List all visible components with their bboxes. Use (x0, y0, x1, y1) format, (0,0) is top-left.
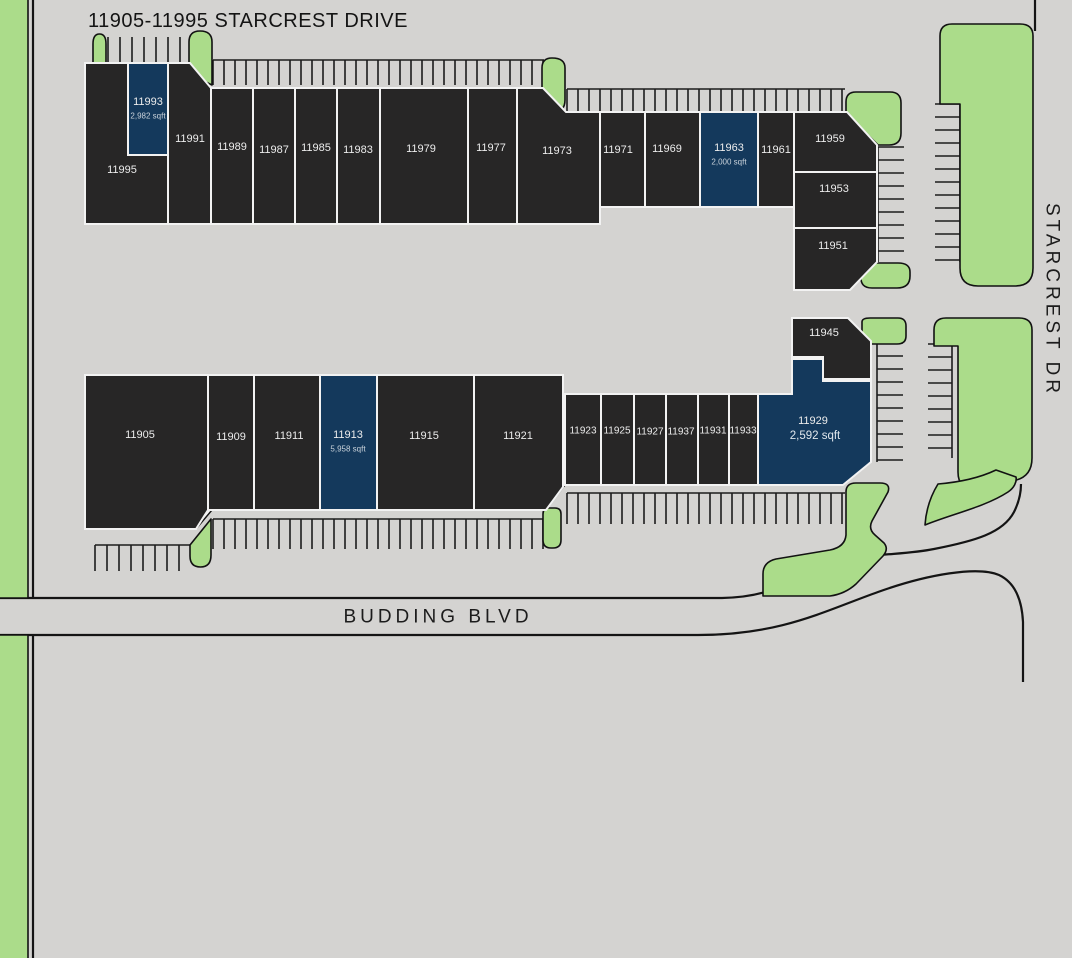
unit-11905[interactable]: 11905 (85, 375, 208, 529)
svg-text:11961: 11961 (761, 144, 791, 156)
landscape-island (543, 508, 561, 548)
unit-11913[interactable]: 11913 5,958 sqft (320, 375, 377, 510)
unit-11987[interactable]: 11987 (253, 88, 295, 224)
unit-11933[interactable]: 11933 (729, 394, 758, 485)
unit-11961[interactable]: 11961 (758, 112, 794, 207)
unit-11923[interactable]: 11923 (565, 394, 601, 485)
svg-text:11991: 11991 (175, 133, 205, 145)
svg-text:11977: 11977 (476, 142, 506, 154)
svg-text:11937: 11937 (667, 427, 695, 438)
unit-11971[interactable]: 11971 (600, 112, 645, 207)
unit-11979[interactable]: 11979 (380, 88, 468, 224)
svg-text:11953: 11953 (819, 183, 849, 195)
svg-text:11931: 11931 (699, 426, 727, 437)
unit-11985[interactable]: 11985 (295, 88, 337, 224)
svg-text:11945: 11945 (809, 327, 839, 339)
unit-11921[interactable]: 11921 (474, 375, 563, 510)
page-title: 11905-11995 STARCREST DRIVE (88, 10, 408, 32)
svg-text:2,982 sqft: 2,982 sqft (130, 112, 166, 121)
unit-11993[interactable]: 11993 2,982 sqft (128, 63, 168, 155)
unit-11937[interactable]: 11937 (666, 394, 698, 485)
landscape-west-strip-south (0, 635, 28, 958)
svg-text:2,000 sqft: 2,000 sqft (711, 158, 747, 167)
unit-11963[interactable]: 11963 2,000 sqft (700, 112, 758, 207)
svg-text:11985: 11985 (301, 142, 331, 154)
svg-text:11987: 11987 (259, 144, 289, 156)
svg-text:11915: 11915 (409, 430, 439, 442)
svg-text:11925: 11925 (603, 426, 631, 437)
svg-text:11971: 11971 (603, 144, 633, 156)
svg-text:11963: 11963 (714, 142, 744, 154)
unit-11991[interactable]: 11991 (168, 63, 211, 224)
svg-text:5,958 sqft: 5,958 sqft (330, 445, 366, 454)
unit-11989[interactable]: 11989 (211, 88, 253, 224)
svg-text:11959: 11959 (815, 133, 845, 145)
unit-11969[interactable]: 11969 (645, 112, 700, 207)
unit-11983[interactable]: 11983 (337, 88, 380, 224)
unit-11953[interactable]: 11953 (794, 172, 877, 228)
svg-text:11909: 11909 (216, 431, 246, 443)
svg-text:11973: 11973 (542, 145, 572, 157)
unit-11931[interactable]: 11931 (698, 394, 729, 485)
svg-text:11983: 11983 (343, 144, 373, 156)
unit-11927[interactable]: 11927 (634, 394, 666, 485)
unit-11977[interactable]: 11977 (468, 88, 517, 224)
starcrest-dr-label: STARCREST DR (1042, 203, 1063, 397)
svg-text:11995: 11995 (107, 164, 137, 176)
svg-text:11927: 11927 (636, 427, 664, 438)
site-plan: 11995 11993 2,982 sqft 11991 11989 11987… (0, 0, 1072, 958)
svg-text:11993: 11993 (133, 96, 163, 108)
unit-11915[interactable]: 11915 (377, 375, 474, 510)
svg-text:11905: 11905 (125, 429, 155, 441)
svg-text:11923: 11923 (569, 426, 597, 437)
svg-text:11933: 11933 (729, 426, 757, 437)
unit-11911[interactable]: 11911 (254, 375, 320, 510)
svg-text:11911: 11911 (275, 430, 304, 442)
unit-11909[interactable]: 11909 (208, 375, 254, 510)
svg-text:11913: 11913 (333, 429, 363, 441)
landscape-island (93, 34, 106, 65)
landscape-west-strip-north (0, 0, 28, 598)
svg-text:11921: 11921 (503, 430, 533, 442)
unit-11925[interactable]: 11925 (601, 394, 634, 485)
svg-text:11979: 11979 (406, 143, 436, 155)
svg-text:11969: 11969 (652, 143, 682, 155)
svg-text:11951: 11951 (818, 240, 848, 252)
svg-text:11989: 11989 (217, 141, 247, 153)
svg-text:11929: 11929 (798, 415, 828, 427)
svg-text:2,592 sqft: 2,592 sqft (790, 430, 841, 442)
budding-blvd-label: BUDDING BLVD (343, 607, 532, 628)
